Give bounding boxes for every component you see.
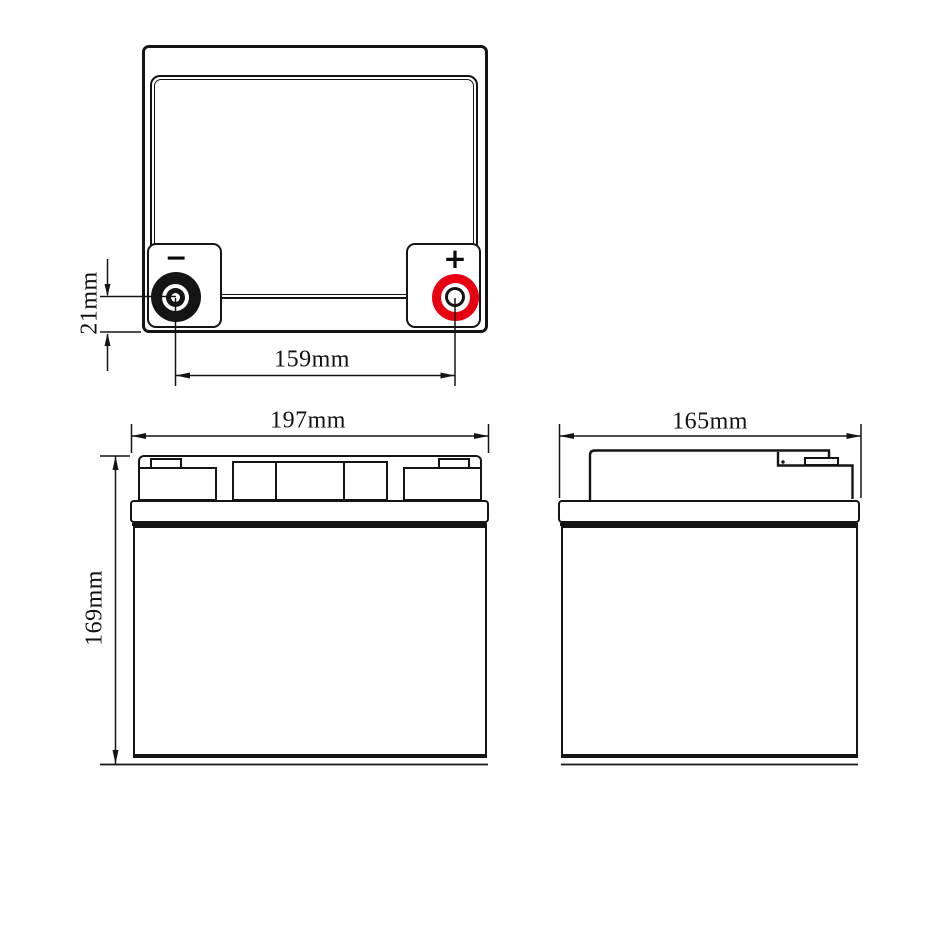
dim-label-front-width: 197mm bbox=[270, 408, 346, 435]
dim-label-terminal-height: 21mm bbox=[77, 271, 104, 334]
negative-terminal-post bbox=[166, 288, 185, 307]
negative-terminal-hole bbox=[171, 293, 180, 302]
negative-terminal bbox=[151, 272, 201, 322]
front-lid-seam bbox=[132, 523, 487, 527]
side-case-body bbox=[561, 526, 858, 758]
plus-icon: + bbox=[443, 245, 466, 273]
front-center-cap-2 bbox=[275, 461, 346, 501]
side-lid-seam bbox=[560, 523, 858, 527]
side-lid-band bbox=[558, 500, 860, 523]
front-center-caps bbox=[232, 461, 388, 501]
positive-terminal-ring bbox=[441, 283, 470, 312]
negative-terminal-ring bbox=[162, 284, 189, 311]
front-terminal-cap-right bbox=[403, 467, 482, 501]
side-lid-profile bbox=[590, 451, 853, 501]
minus-icon: − bbox=[165, 245, 188, 272]
dim-label-terminal-spacing: 159mm bbox=[274, 347, 350, 374]
front-lid-band bbox=[130, 500, 489, 523]
front-center-cap-3 bbox=[343, 461, 389, 501]
positive-terminal-hole bbox=[448, 290, 462, 304]
front-case-body bbox=[133, 526, 487, 758]
technical-drawing-canvas: − + bbox=[0, 0, 935, 935]
front-center-cap-1 bbox=[232, 461, 277, 501]
positive-terminal bbox=[432, 274, 479, 321]
front-terminal-cap-left bbox=[138, 467, 217, 501]
dim-label-side-width: 165mm bbox=[672, 409, 748, 436]
dim-label-front-height: 169mm bbox=[82, 570, 109, 646]
positive-terminal-post bbox=[445, 287, 465, 307]
